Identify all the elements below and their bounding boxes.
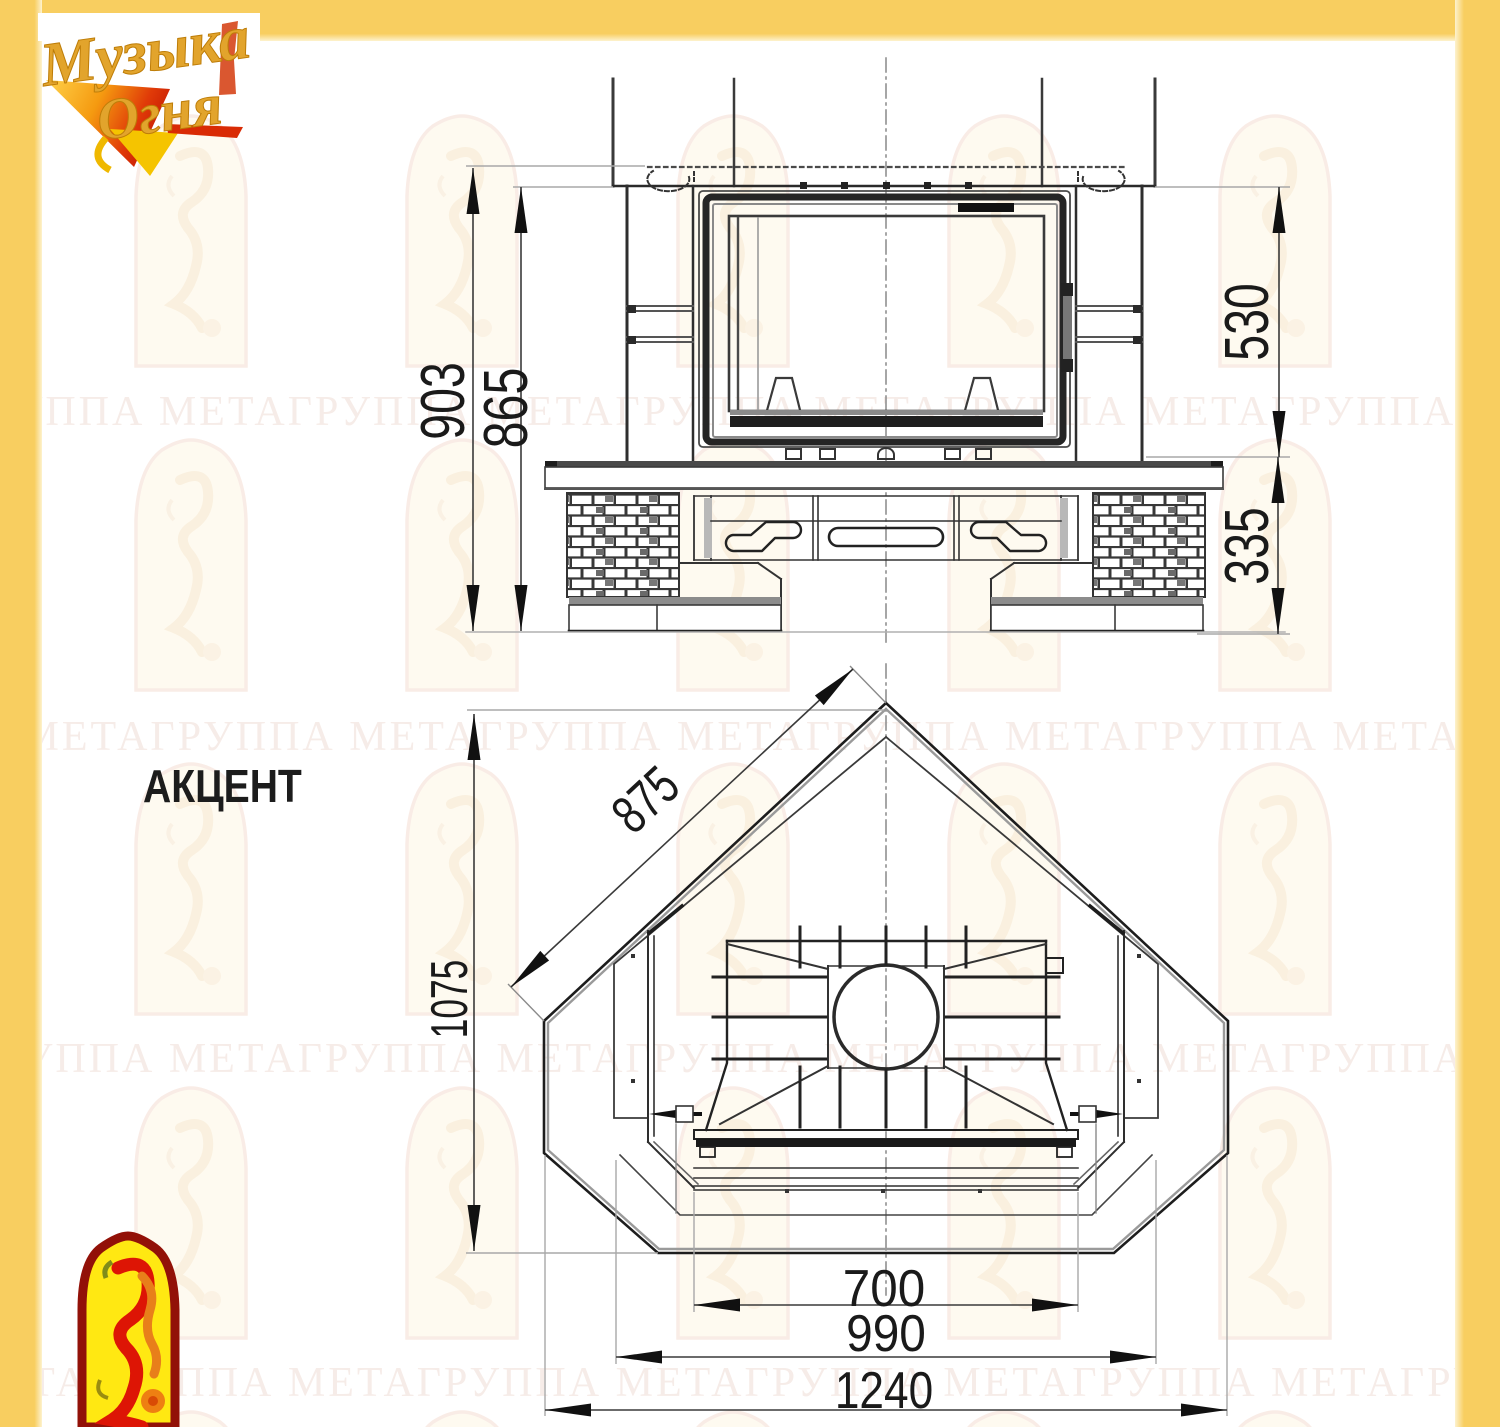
svg-text:1240: 1240 [835,1362,933,1420]
svg-text:335: 335 [1211,507,1281,585]
svg-text:ПА МЕТАГРУППА МЕТАГРУППА МЕТАГ: ПА МЕТАГРУППА МЕТАГРУППА МЕТАГРУППА МЕТА… [0,1360,1500,1406]
svg-text:1075: 1075 [421,960,478,1039]
svg-text:990: 990 [846,1304,926,1362]
svg-text:РУППА МЕТАГРУППА МЕТАГРУППА МЕ: РУППА МЕТАГРУППА МЕТАГРУППА МЕТАГРУППА М… [0,714,1489,760]
svg-text:865: 865 [471,368,540,449]
svg-text:903: 903 [407,362,477,440]
svg-text:530: 530 [1211,283,1281,361]
svg-text:АКЦЕНТ: АКЦЕНТ [143,761,302,813]
